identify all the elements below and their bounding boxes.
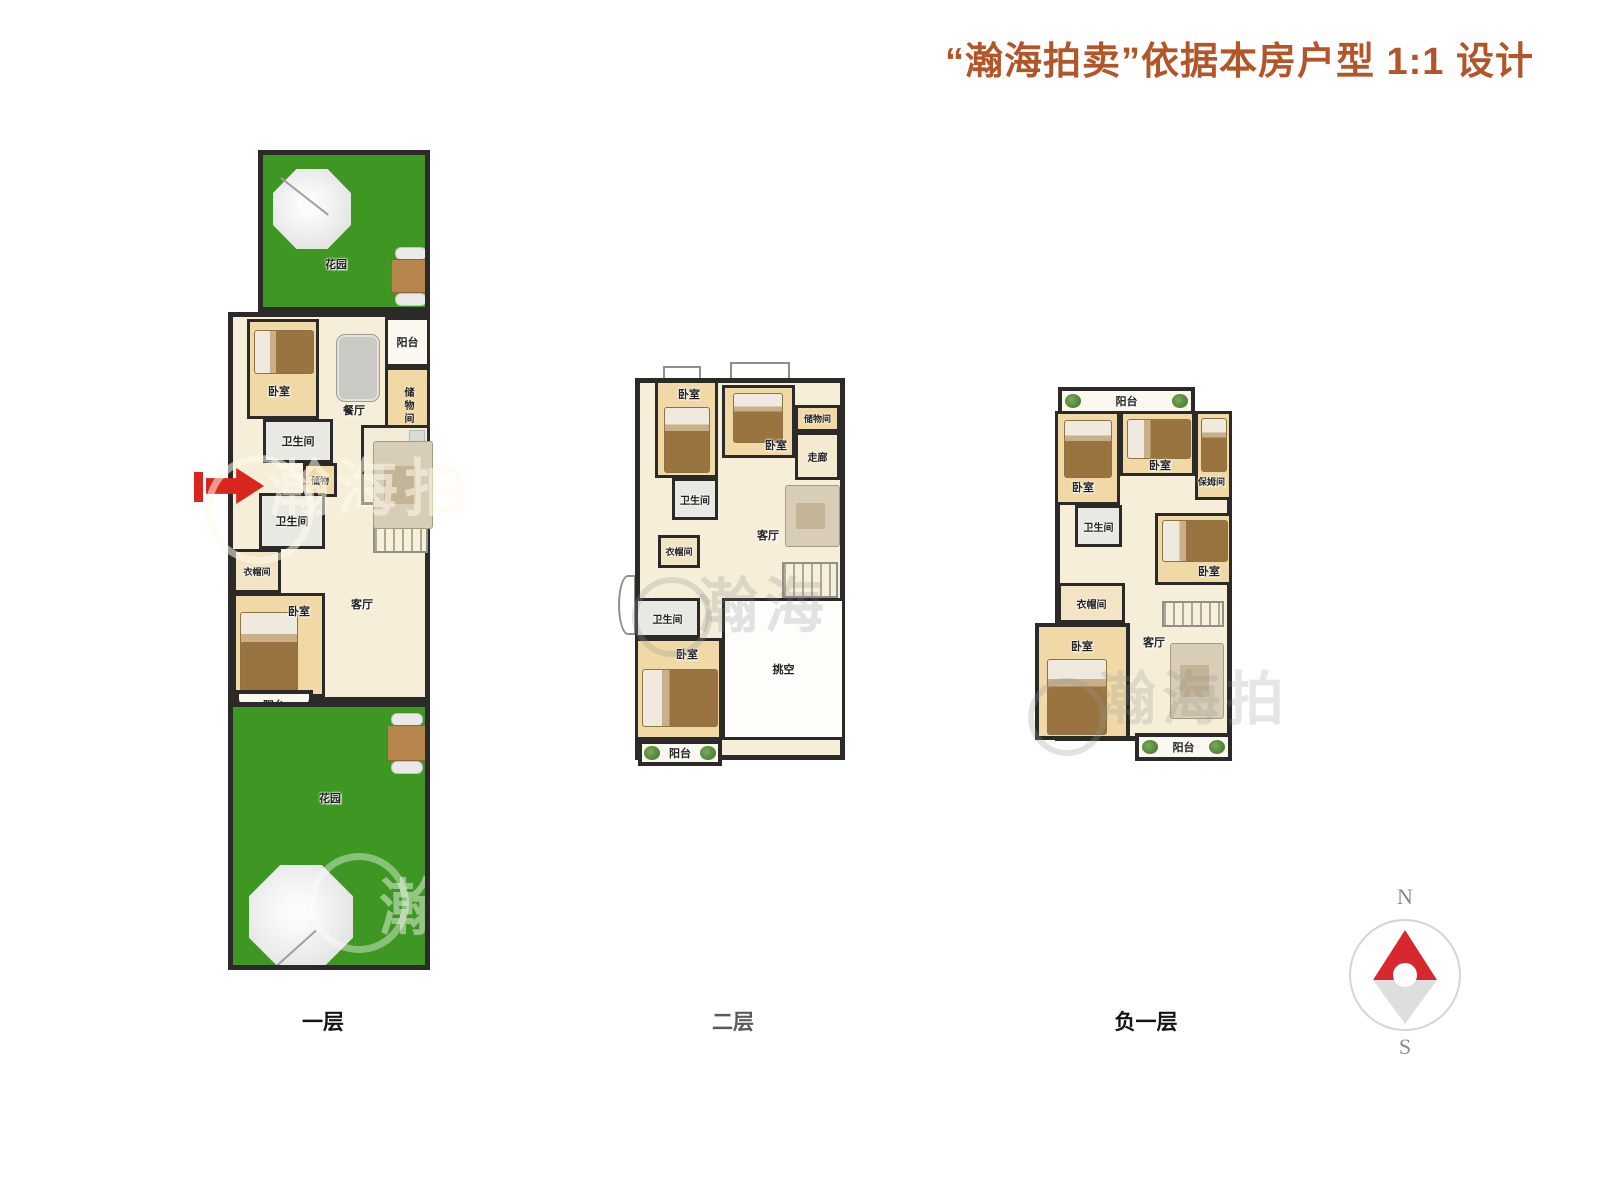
plant-icon <box>1209 740 1225 754</box>
compass-south-label: S <box>1399 1034 1411 1060</box>
room-bedroom: 卧室 <box>247 319 319 419</box>
room-label: 衣帽间 <box>1077 596 1107 611</box>
room-label: 卧室 <box>678 389 700 401</box>
bed-icon <box>1127 419 1191 459</box>
bed-icon <box>1201 418 1227 472</box>
plant-icon <box>644 746 660 760</box>
room-bathroom: 卫生间 <box>672 478 718 520</box>
room-label: 卧室 <box>1198 566 1220 578</box>
plant-icon <box>1172 394 1188 408</box>
bed-icon <box>240 612 298 694</box>
room-label: 卧室 <box>1149 460 1171 472</box>
floor-1-plan: 花园 卧室 餐厅 阳台 储物间 卫生间 <box>220 150 432 972</box>
room-label: 花园 <box>325 259 347 271</box>
sofa-icon <box>1170 643 1224 719</box>
room-balcony: 阳台 <box>638 740 722 766</box>
watermark-text: 瀚海 <box>379 857 430 947</box>
floor-plan-sheet: “瀚海拍卖”依据本房户型 1:1 设计 花园 卧室 餐厅 阳台 <box>0 0 1600 1200</box>
room-bedroom: 卧室 <box>722 385 795 458</box>
bed-icon <box>664 407 710 473</box>
garden-chair-icon <box>395 293 427 306</box>
room-label: 卧室 <box>288 606 310 618</box>
room-label: 卧室 <box>1071 641 1093 653</box>
bed-icon <box>1064 420 1112 478</box>
bed-icon <box>642 669 718 727</box>
room-label: 卧室 <box>765 440 787 452</box>
room-void: 挑空 <box>722 598 845 740</box>
stairs-icon <box>1162 601 1224 627</box>
room-bedroom: 卧室 <box>1120 411 1195 476</box>
plant-icon <box>700 746 716 760</box>
garden-table-icon <box>391 259 430 293</box>
room-label: 卧室 <box>676 649 698 661</box>
room-label: 走廊 <box>808 449 828 464</box>
room-cloakroom: 衣帽间 <box>233 549 281 593</box>
room-bathroom: 卫生间 <box>635 598 700 638</box>
stairs-icon <box>782 562 838 598</box>
room-nanny: 保姆间 <box>1195 411 1232 500</box>
entry-arrow-icon <box>194 472 203 502</box>
floor-caption-2: 二层 <box>712 1006 754 1036</box>
room-label: 卫生间 <box>680 492 710 507</box>
garden-table-icon <box>387 725 427 761</box>
room-label: 阳台 <box>397 334 419 350</box>
room-label: 卧室 <box>1072 482 1094 494</box>
room-label: 花园 <box>319 793 341 805</box>
room-garden-top: 花园 <box>258 150 430 312</box>
room-label: 储物 <box>311 474 329 487</box>
umbrella-icon <box>249 865 353 969</box>
room-label: 客厅 <box>757 530 779 542</box>
room-label: 衣帽间 <box>665 545 692 558</box>
bed-icon <box>733 393 783 443</box>
room-label: 客厅 <box>351 599 373 611</box>
room-closet: 储物 <box>303 463 337 497</box>
plant-icon <box>1065 394 1081 408</box>
compass-hub <box>1393 963 1417 987</box>
room-label: 阳台 <box>1116 393 1138 409</box>
garden-chair-icon <box>391 761 423 774</box>
room-label: 卫生间 <box>276 513 309 529</box>
room-garden-bottom: 花园 瀚海 <box>228 702 430 970</box>
room-label: 餐厅 <box>343 405 365 417</box>
sofa-icon <box>785 485 840 547</box>
window-bay-icon <box>618 575 636 635</box>
room-label: 储物间 <box>804 412 831 425</box>
sofa-icon <box>373 441 433 529</box>
plant-icon <box>1142 740 1158 754</box>
room-bedroom: 卧室 <box>1035 623 1130 740</box>
room-bedroom: 卧室 <box>655 380 718 478</box>
room-label: 储物间 <box>400 387 415 426</box>
floor-caption-3: 负一层 <box>1115 1006 1178 1036</box>
page-title: “瀚海拍卖”依据本房户型 1:1 设计 <box>945 30 1534 85</box>
room-label: 卧室 <box>268 386 290 398</box>
floor-3-plan: 阳台 卧室 卧室 保姆间 卫生间 卧室 衣帽间 <box>1010 385 1235 770</box>
room-bedroom: 卧室 <box>635 638 722 740</box>
room-balcony: 阳台 <box>1135 733 1232 761</box>
room-corridor: 走廊 <box>795 432 840 480</box>
room-label: 阳台 <box>669 745 691 761</box>
room-bathroom: 卫生间 <box>259 493 325 549</box>
room-label: 保姆间 <box>1198 478 1225 488</box>
room-label: 挑空 <box>773 661 795 677</box>
bed-icon <box>1047 659 1107 735</box>
floor-2-plan: 卧室 卧室 储物间 走廊 卫生间 衣帽间 卫生间 卧室 <box>620 360 848 766</box>
room-label: 卫生间 <box>1084 519 1114 534</box>
bed-icon <box>1162 520 1228 562</box>
room-cloakroom: 衣帽间 <box>658 535 700 568</box>
room-label: 卫生间 <box>653 611 683 626</box>
room-label: 客厅 <box>1143 637 1165 649</box>
floor-caption-1: 一层 <box>302 1006 344 1036</box>
room-bedroom: 卧室 <box>1155 513 1232 585</box>
room-bedroom: 卧室 <box>233 593 325 697</box>
bed-icon <box>254 330 314 374</box>
room-bedroom: 卧室 <box>1055 411 1120 505</box>
room-bathroom: 卫生间 <box>1075 505 1122 547</box>
floor-1-house: 卧室 餐厅 阳台 储物间 卫生间 储物 厨房 <box>228 312 430 702</box>
compass-north-label: N <box>1397 884 1413 910</box>
room-balcony: 阳台 <box>385 317 430 367</box>
room-label: 卫生间 <box>282 433 315 449</box>
dining-table-icon <box>337 335 379 401</box>
room-storage: 储物间 <box>795 405 840 432</box>
room-label: 衣帽间 <box>243 565 270 578</box>
room-label: 阳台 <box>1173 739 1195 755</box>
room-bathroom: 卫生间 <box>263 419 333 463</box>
room-cloakroom: 衣帽间 <box>1058 583 1125 623</box>
